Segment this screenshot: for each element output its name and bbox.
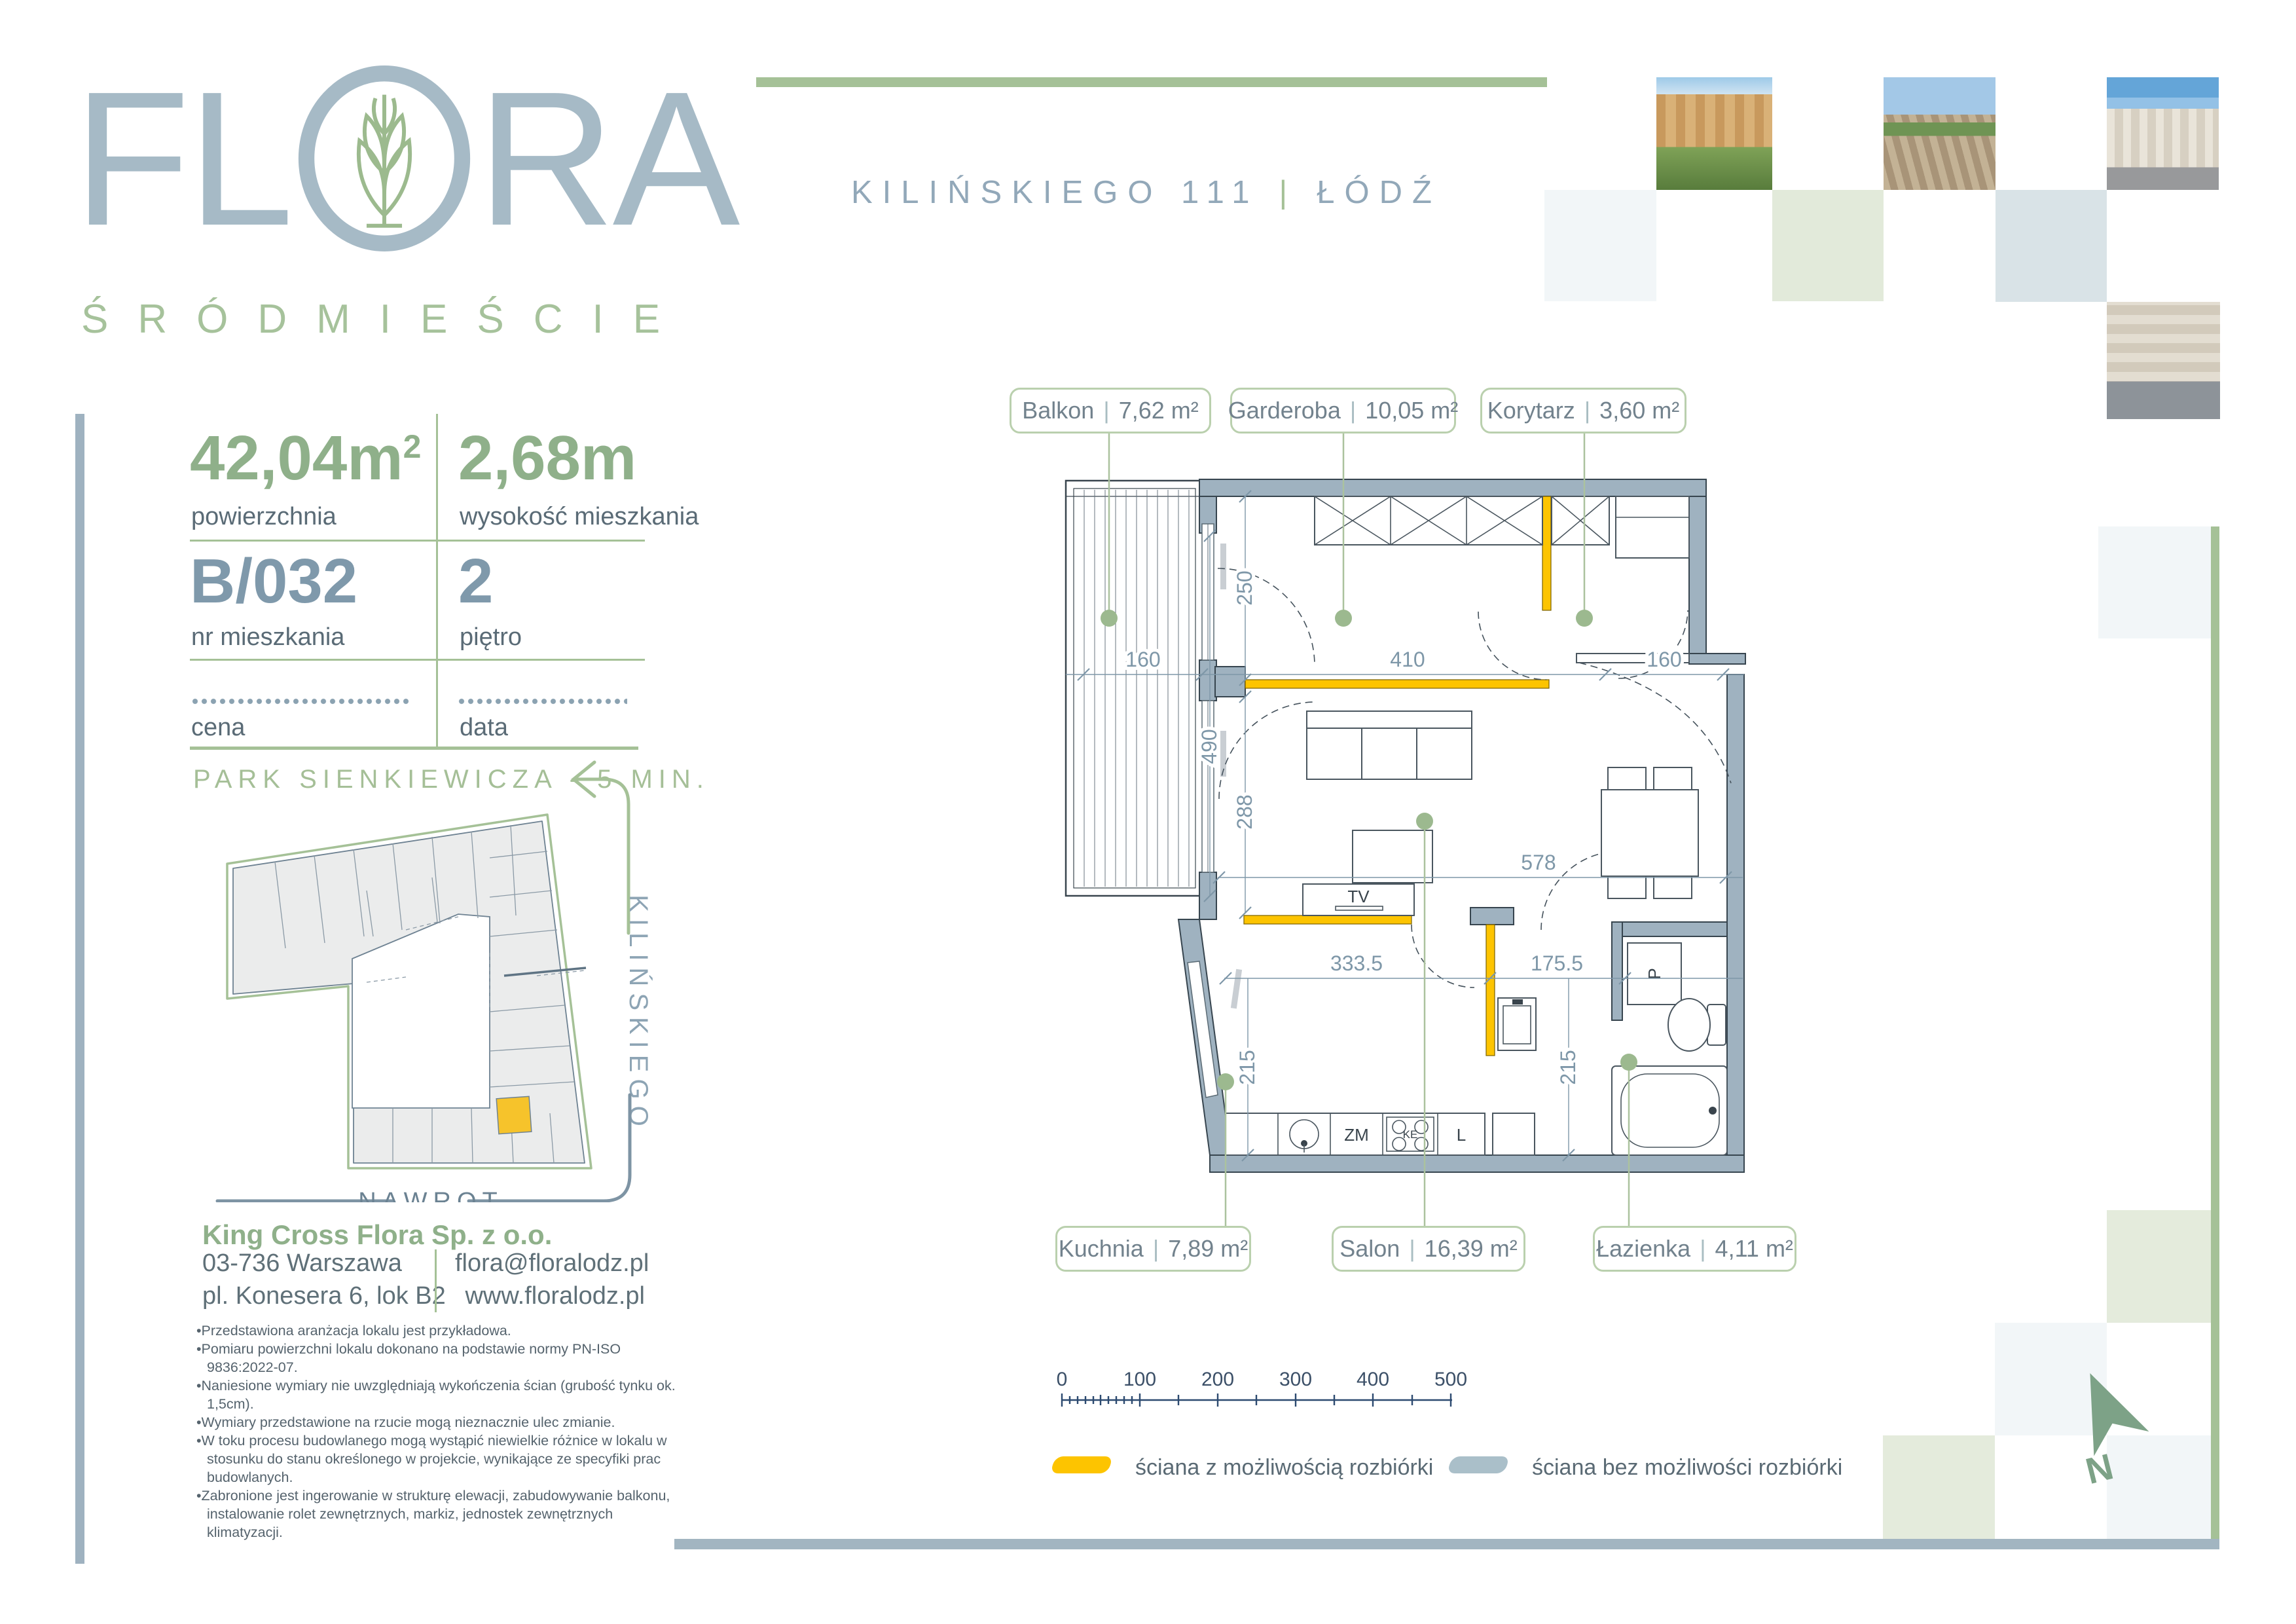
area-value: 42,04m2	[190, 427, 421, 490]
floor-label: piętro	[460, 623, 522, 652]
company-divider	[435, 1249, 437, 1312]
disclaimer-item: Przedstawiona aranżacja lokalu jest przy…	[196, 1321, 684, 1340]
logo-subtitle: ŚRÓDMIEŚCIE	[81, 296, 689, 342]
scale-bar: 0 100 200 300 400 500	[1041, 1365, 1499, 1418]
hall-washbasin	[1498, 998, 1536, 1050]
sofa	[1307, 711, 1472, 779]
building-photo-aerial	[1884, 77, 1995, 190]
spec-divider-vertical	[436, 414, 438, 749]
header-address: KILIŃSKIEGO 111|ŁÓDŹ	[851, 174, 1442, 211]
legend-fixed-label: ściana bez możliwości rozbiórki	[1532, 1455, 1842, 1481]
north-indicator: N	[2049, 1362, 2160, 1500]
header-green-bar	[756, 77, 1547, 87]
street-nawrot-label: NAWROT	[358, 1188, 503, 1202]
legend-swatch-removable	[1050, 1456, 1113, 1473]
bottom-accent-bar	[674, 1539, 2219, 1549]
park-arrow-icon	[574, 762, 629, 933]
disclaimer-item: Naniesione wymiary nie uwzględniają wyko…	[196, 1376, 684, 1413]
tv-label: TV	[1347, 887, 1370, 906]
area-sup: 2	[403, 428, 422, 465]
room-label-garderoba: Garderoba|10,05 m²	[1230, 388, 1456, 434]
date-label: data	[460, 714, 508, 742]
dim-balcony-height: 490	[1197, 729, 1221, 764]
dim-garderoba-width: 410	[1390, 648, 1425, 671]
unit-number: B/032	[190, 550, 357, 613]
disclaimer-item: Zabronione jest ingerowanie w strukturę …	[196, 1486, 684, 1541]
dim-garderoba-depth: 250	[1233, 570, 1256, 605]
header-separator: |	[1279, 175, 1298, 210]
scale-tick-label: 200	[1201, 1369, 1234, 1390]
disclaimer-item: Pomiaru powierzchni lokalu dokonano na p…	[196, 1340, 684, 1376]
decor-square	[1995, 190, 2107, 302]
washing-machine: P	[1628, 943, 1681, 1005]
decor-square	[1883, 1435, 1995, 1539]
dim-salon-width: 578	[1521, 851, 1556, 874]
logo-text-right: RA	[477, 63, 738, 254]
legend-swatch-fixed	[1447, 1456, 1510, 1473]
hob-label: KE	[1403, 1128, 1418, 1141]
highlighted-unit[interactable]	[496, 1096, 532, 1134]
dishwasher-label: ZM	[1344, 1125, 1369, 1145]
scale-tick-label: 100	[1123, 1369, 1156, 1390]
flora-logo: FL RA	[73, 63, 737, 254]
height-value: 2,68m	[458, 427, 636, 490]
dim-salon-depth: 288	[1233, 794, 1256, 829]
company-email[interactable]: flora@floralodz.pl	[455, 1249, 645, 1278]
scale-tick-label: 500	[1434, 1369, 1467, 1390]
kitchen-counter: ZM KE L	[1226, 1113, 1535, 1155]
decor-square	[2098, 526, 2211, 638]
left-accent-bar	[75, 414, 84, 1564]
room-label-korytarz: Korytarz|3,60 m²	[1480, 388, 1686, 434]
room-label-balkon: Balkon|7,62 m²	[1010, 388, 1211, 434]
floor-plan: TV ZM KE L	[1041, 419, 1769, 1277]
spec-divider-row2	[190, 659, 645, 661]
dining-set	[1601, 767, 1698, 898]
height-label: wysokość mieszkania	[460, 503, 699, 531]
company-street: pl. Konesera 6, lok B2	[202, 1282, 446, 1310]
date-placeholder-dots	[458, 698, 627, 705]
fridge-label: L	[1457, 1125, 1466, 1145]
area-label: powierzchnia	[191, 503, 337, 531]
company-name: King Cross Flora Sp. z o.o.	[202, 1219, 552, 1251]
dim-balcony-width: 160	[1125, 648, 1160, 671]
disclaimer-item: Wymiary przedstawione na rzucie mogą nie…	[196, 1413, 684, 1431]
leaf-circle-icon	[295, 63, 473, 254]
legend-removable-label: ściana z możliwością rozbiórki	[1135, 1455, 1433, 1481]
building-photo-street	[2107, 77, 2219, 190]
cabinet	[1493, 1113, 1535, 1155]
room-label-salon: Salon|16,39 m²	[1332, 1226, 1525, 1272]
dim-hall-width: 160	[1647, 648, 1681, 671]
header-city: ŁÓDŹ	[1317, 175, 1442, 210]
disclaimer-item: W toku procesu budowlanego mogą wystąpić…	[196, 1431, 684, 1486]
dim-hall2-width: 175.5	[1531, 951, 1583, 975]
company-postal-city: 03-736 Warszawa	[202, 1249, 402, 1278]
price-label: cena	[191, 714, 245, 742]
dim-kitchen-depth: 215	[1235, 1050, 1259, 1084]
toilet-icon	[1668, 999, 1726, 1051]
floor-value: 2	[458, 550, 493, 613]
wardrobes	[1315, 496, 1689, 558]
unit-number-label: nr mieszkania	[191, 623, 344, 652]
spec-divider-bottom	[190, 747, 638, 750]
company-website[interactable]: www.floralodz.pl	[455, 1282, 645, 1310]
building-photo-facade	[2107, 302, 2220, 419]
decor-square	[1544, 190, 1656, 301]
spec-divider-row1	[190, 540, 645, 542]
room-label-kuchnia: Kuchnia|7,89 m²	[1055, 1226, 1251, 1272]
site-map: KILIŃSKIEGO NAWROT	[151, 753, 668, 1202]
flyer-page: FL RA ŚRÓDMIEŚCIE KILIŃSKIEGO 111|ŁÓDŹ	[0, 0, 2296, 1624]
dim-bath-depth: 215	[1556, 1050, 1580, 1084]
price-placeholder-dots	[192, 698, 409, 705]
coffee-table	[1353, 830, 1432, 883]
washer-label: P	[1645, 968, 1664, 979]
dim-kitchen-width: 333.5	[1330, 951, 1383, 975]
room-label-lazienka: Łazienka|4,11 m²	[1593, 1226, 1796, 1272]
balcony	[1066, 481, 1203, 896]
right-accent-bar	[2211, 526, 2219, 1539]
scale-tick-label: 0	[1057, 1369, 1068, 1390]
logo-text-left: FL	[73, 63, 291, 254]
header-street: KILIŃSKIEGO 111	[851, 175, 1260, 210]
building-photo-courtyard	[1656, 77, 1772, 190]
north-label: N	[2081, 1445, 2117, 1492]
disclaimer-list: Przedstawiona aranżacja lokalu jest przy…	[196, 1321, 684, 1541]
scale-tick-label: 300	[1279, 1369, 1312, 1390]
decor-square	[2107, 1210, 2211, 1323]
tv-cabinet: TV	[1303, 884, 1414, 915]
north-arrow-icon	[2062, 1362, 2149, 1456]
decor-square	[1772, 190, 1884, 301]
scale-tick-label: 400	[1357, 1369, 1389, 1390]
